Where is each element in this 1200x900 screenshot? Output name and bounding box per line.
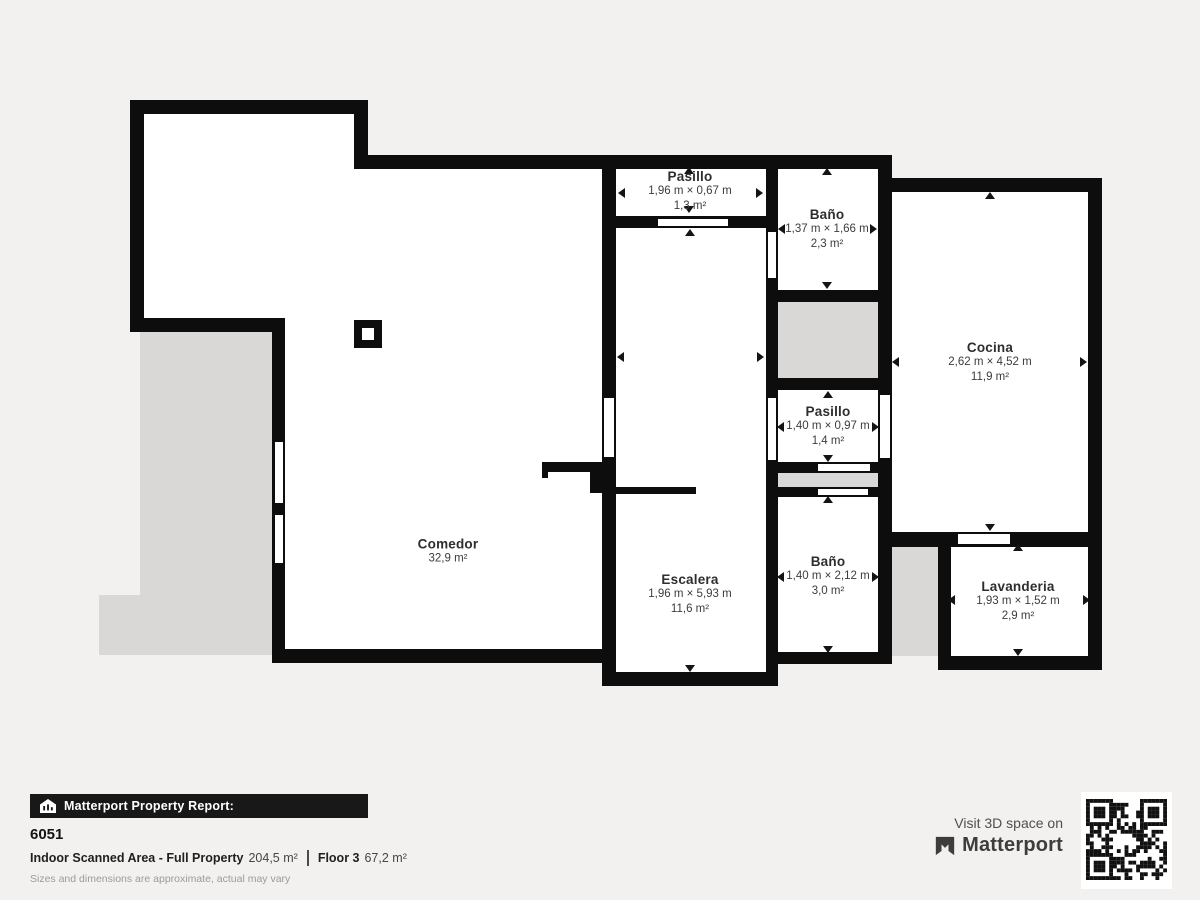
report-bar-label: Matterport Property Report: <box>64 799 234 813</box>
window <box>275 442 283 503</box>
door-opening <box>604 398 614 457</box>
scanned-area-value: 204,5 m² <box>248 851 297 865</box>
scan-stats: Indoor Scanned Area - Full Property 204,… <box>30 850 407 866</box>
room-name: Escalera <box>648 572 731 587</box>
divider <box>307 850 309 866</box>
dimension-arrow-d <box>1013 649 1023 656</box>
shaft-area <box>892 547 938 656</box>
dimension-arrow-d <box>985 524 995 531</box>
property-id: 6051 <box>30 826 63 843</box>
door-opening <box>658 219 728 226</box>
wall <box>766 290 892 302</box>
visit-text: Visit 3D space on <box>934 814 1063 832</box>
brand-name: Matterport <box>962 834 1063 857</box>
wall <box>130 318 285 332</box>
shaft-area <box>778 302 878 378</box>
dimension-arrow-r <box>756 188 763 198</box>
room-name: Cocina <box>948 340 1031 355</box>
room-dimensions: 1,93 m × 1,52 m <box>976 594 1059 609</box>
wall <box>614 487 696 494</box>
wall <box>354 155 892 169</box>
door-opening <box>768 232 776 278</box>
qr-code <box>1081 792 1172 889</box>
room-name: Baño <box>785 207 868 222</box>
floor-label: Floor 3 <box>318 851 360 865</box>
dimension-arrow-r <box>872 422 879 432</box>
dimension-arrow-l <box>892 357 899 367</box>
floor-value: 67,2 m² <box>364 851 406 865</box>
dimension-arrow-r <box>870 224 877 234</box>
room-label-comedor: Comedor 32,9 m² <box>418 536 479 566</box>
room-label-cocina: Cocina 2,62 m × 4,52 m 11,9 m² <box>948 340 1031 384</box>
room-name: Lavanderia <box>976 579 1059 594</box>
disclaimer: Sizes and dimensions are approximate, ac… <box>30 873 290 885</box>
room-dimensions: 1,96 m × 0,67 m <box>648 184 731 199</box>
dimension-arrow-l <box>777 422 784 432</box>
brand-block: Visit 3D space on Matterport <box>934 814 1063 857</box>
dimension-arrow-l <box>618 188 625 198</box>
room-area: 1,4 m² <box>786 434 869 449</box>
wall <box>1088 178 1102 670</box>
dimension-arrow-d <box>685 665 695 672</box>
room-area: 32,9 m² <box>418 551 479 566</box>
room-label-escalera: Escalera 1,96 m × 5,93 m 11,6 m² <box>648 572 731 616</box>
door-opening <box>880 395 890 458</box>
shaft-area <box>778 473 878 487</box>
window <box>275 515 283 563</box>
dimension-arrow-r <box>1080 357 1087 367</box>
room-dimensions: 1,40 m × 2,12 m <box>786 569 869 584</box>
wall <box>888 178 1102 192</box>
matterport-logo-icon <box>934 835 956 857</box>
room-label-pasillo-mid: Pasillo 1,40 m × 0,97 m 1,4 m² <box>786 404 869 448</box>
qr-code-svg <box>1086 799 1167 880</box>
room-area: 3,0 m² <box>786 584 869 599</box>
dimension-arrow-u <box>823 496 833 503</box>
wall <box>766 378 892 390</box>
dimension-arrow-u <box>823 391 833 398</box>
room-label-bano-mid: Baño 1,40 m × 2,12 m 3,0 m² <box>786 554 869 598</box>
wall <box>938 656 1102 670</box>
report-bar: Matterport Property Report: <box>30 794 368 818</box>
floor-plan-page: Comedor 32,9 m² Pasillo 1,96 m × 0,67 m … <box>0 0 1200 900</box>
room-dimensions: 1,37 m × 1,66 m <box>785 222 868 237</box>
room-name: Pasillo <box>648 169 731 184</box>
dimension-arrow-l <box>948 595 955 605</box>
room-dimensions: 1,96 m × 5,93 m <box>648 587 731 602</box>
wall <box>542 462 548 478</box>
room-label-lavanderia: Lavanderia 1,93 m × 1,52 m 2,9 m² <box>976 579 1059 623</box>
pillar-core <box>362 328 374 340</box>
door-opening <box>818 464 870 471</box>
floor-plan: Comedor 32,9 m² Pasillo 1,96 m × 0,67 m … <box>0 0 1200 780</box>
room-dimensions: 1,40 m × 0,97 m <box>786 419 869 434</box>
scanned-area-label: Indoor Scanned Area - Full Property <box>30 851 243 865</box>
house-report-icon <box>40 799 56 813</box>
door-opening <box>818 489 868 495</box>
room-name: Pasillo <box>786 404 869 419</box>
wall <box>590 466 614 493</box>
wall <box>272 649 604 663</box>
wall <box>602 672 778 686</box>
dimension-arrow-r <box>757 352 764 362</box>
room-label-bano-top: Baño 1,37 m × 1,66 m 2,3 m² <box>785 207 868 251</box>
door-opening <box>768 398 776 460</box>
room-area: 11,9 m² <box>948 370 1031 385</box>
room-area: 1,3 m² <box>648 199 731 214</box>
door-opening <box>958 534 1010 544</box>
dimension-arrow-u <box>685 229 695 236</box>
wall <box>130 100 368 114</box>
dimension-arrow-l <box>777 572 784 582</box>
room-name: Comedor <box>418 536 479 551</box>
brand-row: Matterport <box>934 834 1063 857</box>
room-dimensions: 2,62 m × 4,52 m <box>948 355 1031 370</box>
dimension-arrow-l <box>617 352 624 362</box>
room-area: 11,6 m² <box>648 602 731 617</box>
room-area: 2,9 m² <box>976 609 1059 624</box>
dimension-arrow-d <box>823 646 833 653</box>
dimension-arrow-r <box>1083 595 1090 605</box>
room-label-pasillo-top: Pasillo 1,96 m × 0,67 m 1,3 m² <box>648 169 731 213</box>
dimension-arrow-u <box>985 192 995 199</box>
room-area: 2,3 m² <box>785 237 868 252</box>
wall <box>130 100 144 332</box>
terrace-area <box>99 595 140 655</box>
dimension-arrow-d <box>822 282 832 289</box>
room-floor-comedor <box>285 169 602 650</box>
room-name: Baño <box>786 554 869 569</box>
dimension-arrow-u <box>822 168 832 175</box>
dimension-arrow-l <box>778 224 785 234</box>
dimension-arrow-d <box>823 455 833 462</box>
terrace-area <box>140 332 272 655</box>
dimension-arrow-r <box>872 572 879 582</box>
dimension-arrow-u <box>1013 544 1023 551</box>
wall <box>766 652 892 664</box>
